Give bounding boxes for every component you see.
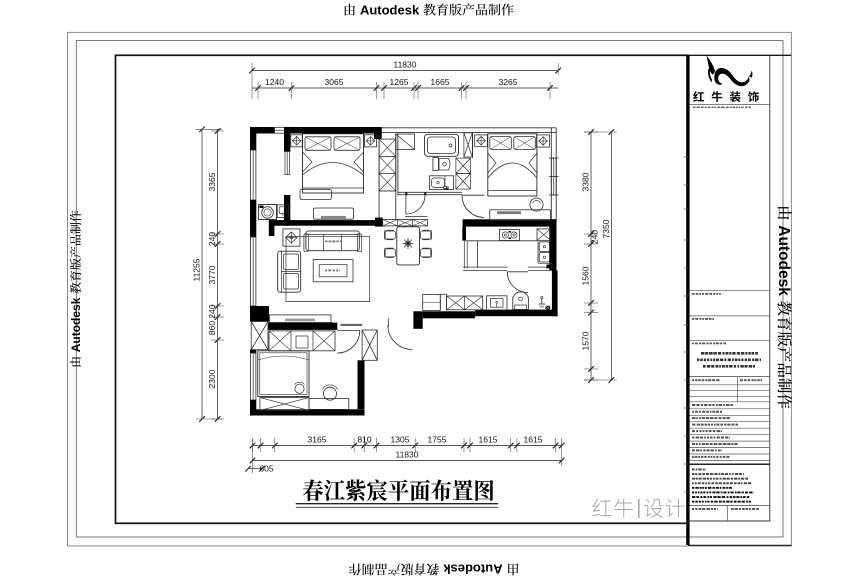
svg-text:1570: 1570 [580,331,590,350]
svg-text:Autodesk: Autodesk [360,3,420,18]
svg-text:11830: 11830 [393,60,416,70]
svg-text:860: 860 [207,321,217,335]
svg-text:11255: 11255 [192,258,202,281]
svg-text:3165: 3165 [308,435,327,445]
svg-text:Autodesk: Autodesk [443,562,503,577]
svg-text:605: 605 [259,464,273,474]
svg-text:3770: 3770 [207,265,217,284]
svg-text:1665: 1665 [431,77,450,87]
svg-text:11830: 11830 [395,450,418,460]
svg-text:1560: 1560 [580,266,590,285]
svg-text:2300: 2300 [207,369,217,388]
svg-text:1615: 1615 [479,435,498,445]
svg-text:1265: 1265 [390,77,409,87]
svg-text:1305: 1305 [391,435,410,445]
svg-text:7350: 7350 [601,219,611,238]
svg-text:3265: 3265 [499,77,518,87]
svg-text:1615: 1615 [524,435,543,445]
svg-text:1755: 1755 [428,435,447,445]
svg-text:240: 240 [590,230,600,244]
svg-text:3380: 3380 [580,172,590,191]
svg-text:810: 810 [357,435,371,445]
svg-text:240: 240 [207,304,217,318]
svg-text:240: 240 [207,232,217,246]
svg-text:3365: 3365 [207,172,217,191]
svg-text:Autodesk: Autodesk [69,297,83,352]
svg-text:3065: 3065 [325,77,344,87]
svg-text:1240: 1240 [265,77,284,87]
svg-text:Autodesk: Autodesk [775,225,792,296]
